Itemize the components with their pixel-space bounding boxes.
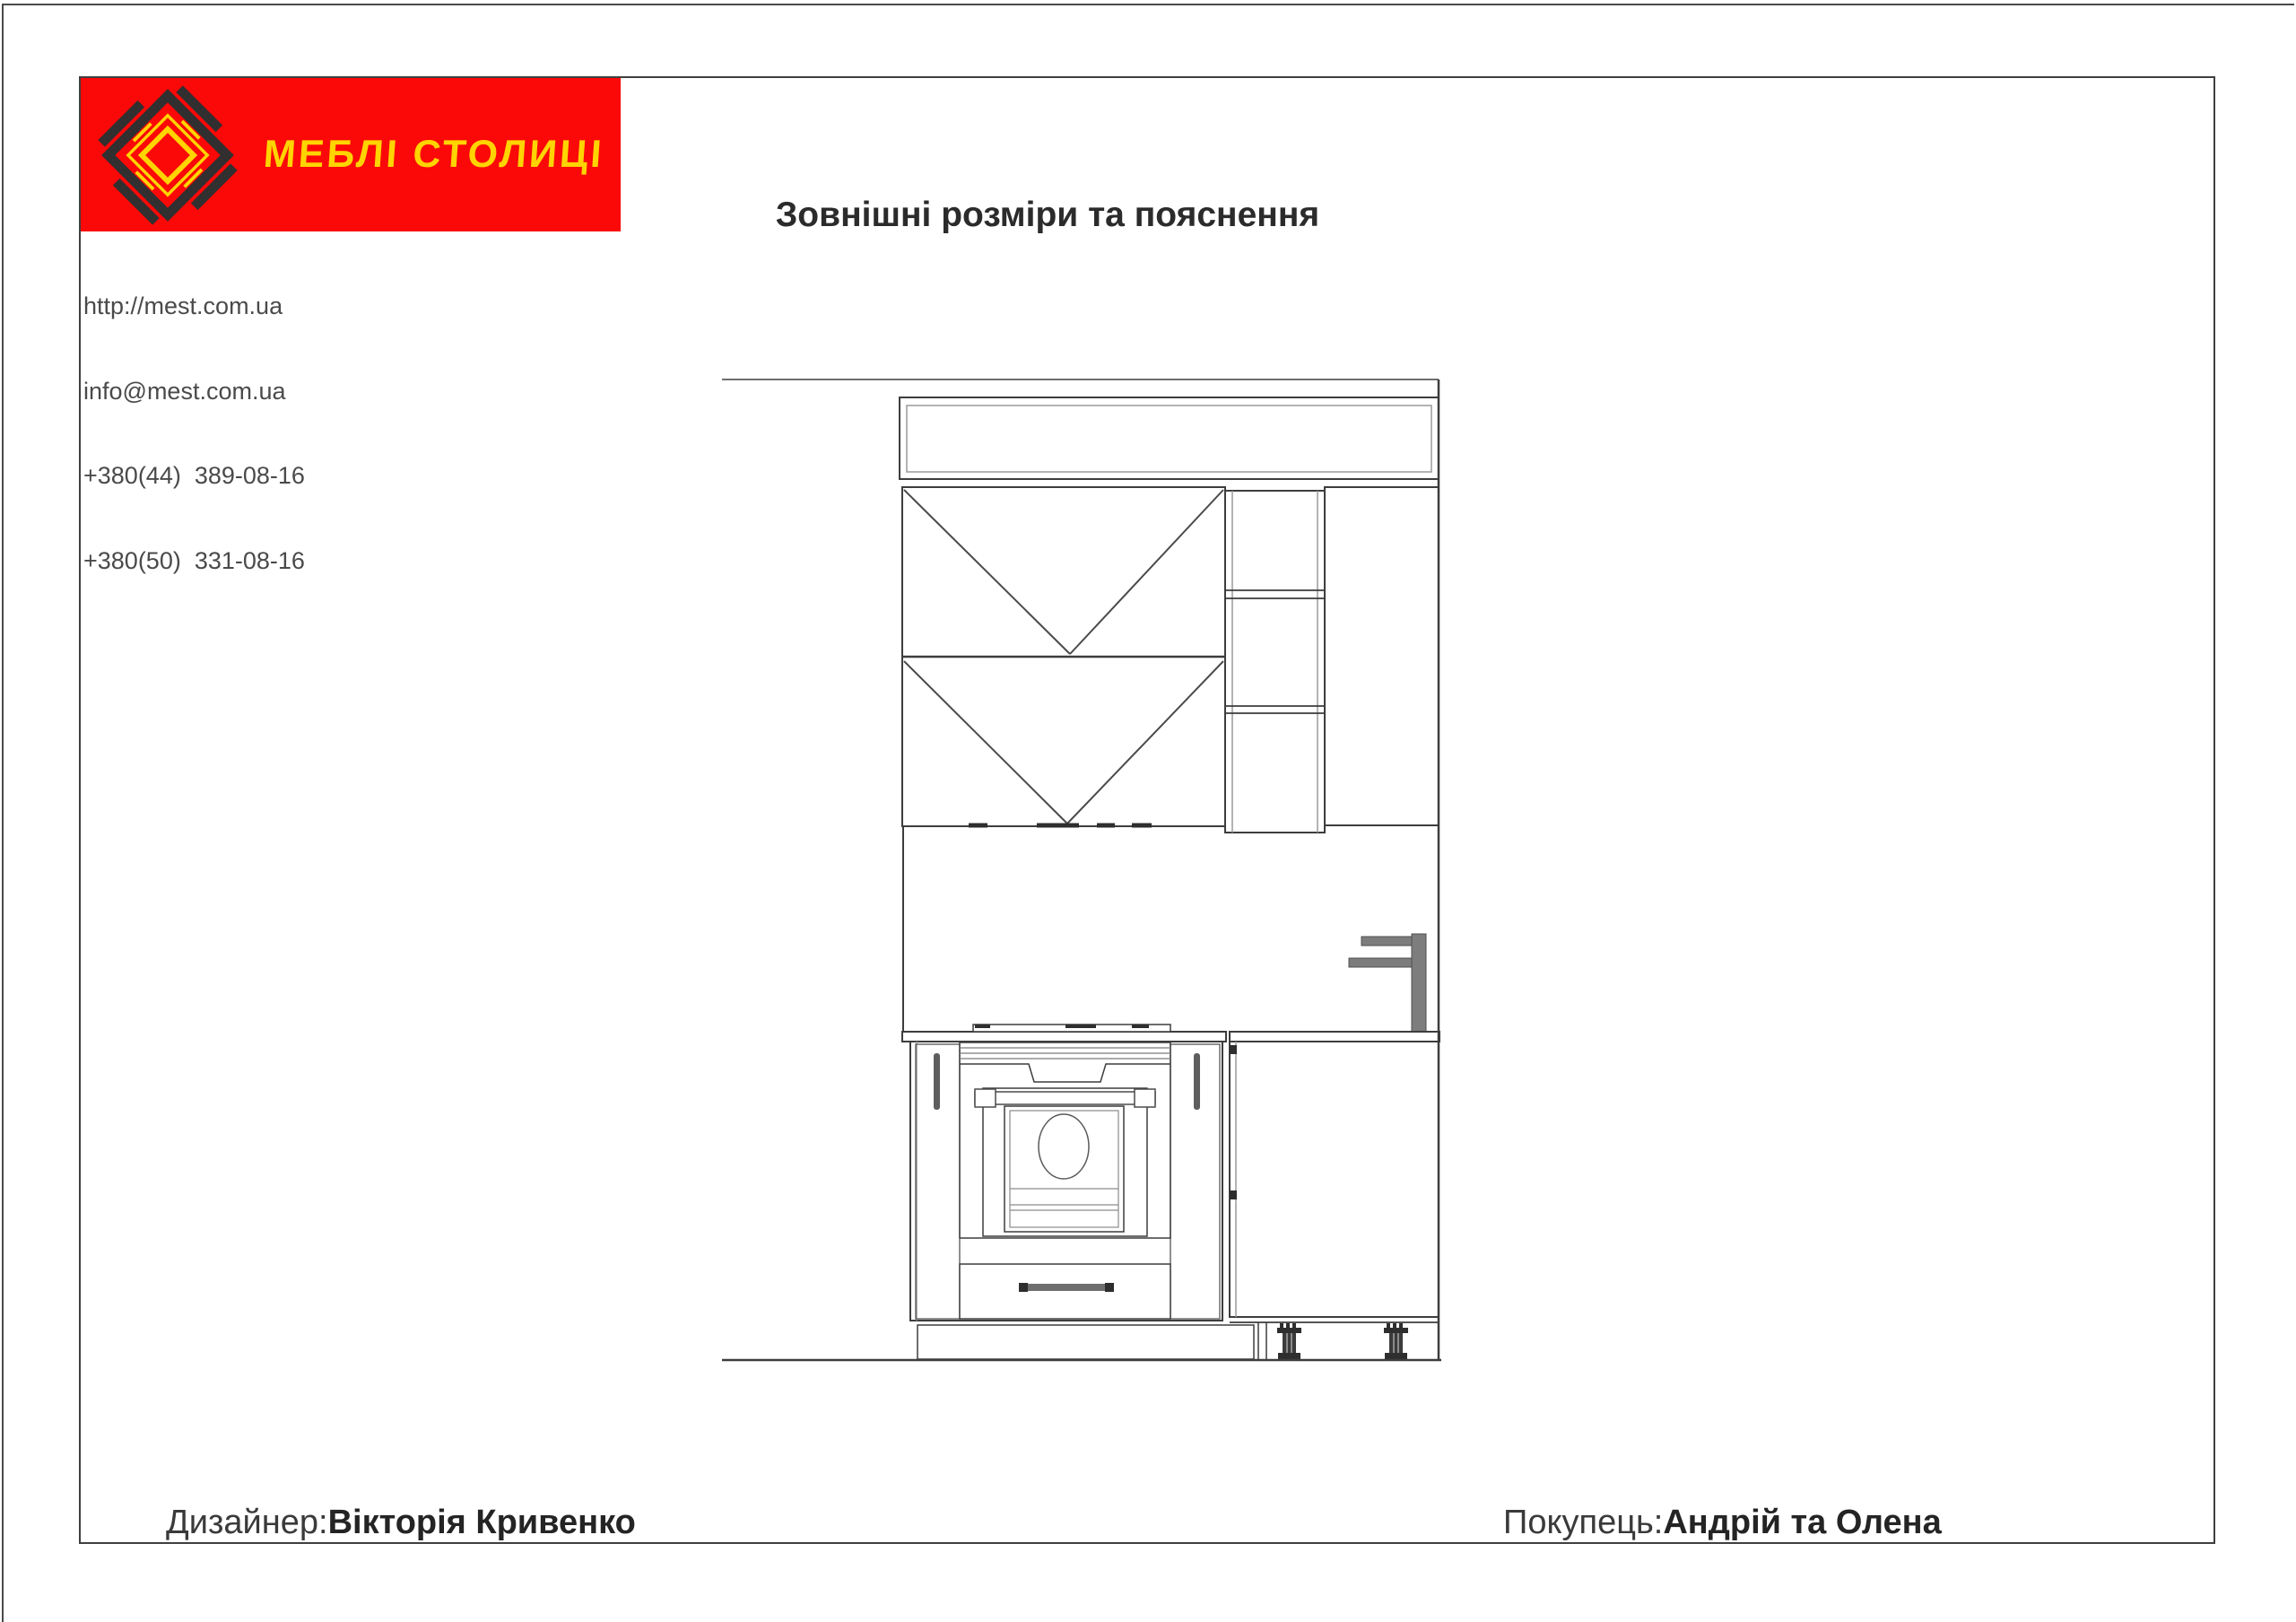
page-border-top (2, 4, 2294, 5)
cabinet-legs (1277, 1323, 1408, 1359)
diamond-logo-icon (93, 81, 242, 230)
brand-banner: МЕБЛІ СТОЛИЦІ (81, 78, 621, 231)
buyer-row: Покупець:Андрій та Олена (1503, 1504, 1942, 1542)
door-handle-right (1194, 1053, 1200, 1110)
design-sheet: МЕБЛІ СТОЛИЦІ http://mest.com.ua info@me… (0, 0, 2296, 1622)
kitchen-elevation-drawing (700, 359, 1471, 1382)
worktop (902, 1032, 1439, 1042)
page-border-left (2, 4, 4, 1622)
logo-outer-accents (93, 81, 242, 230)
email-link[interactable]: info@mest.com.ua (83, 378, 305, 406)
brand-name: МЕБЛІ СТОЛИЦІ (262, 133, 605, 177)
faucet (1349, 934, 1426, 1033)
designer-row: Дизайнер:Вікторія Кривенко (166, 1504, 636, 1542)
logo-center-diamond (142, 129, 194, 181)
side-panel-edge (1258, 1322, 1266, 1359)
door-handle-left (934, 1053, 940, 1110)
plinth (918, 1325, 1254, 1359)
designer-label: Дизайнер: (166, 1504, 328, 1541)
cooktop (973, 1025, 1170, 1032)
buyer-name: Андрій та Олена (1663, 1504, 1941, 1541)
side-panel (1325, 487, 1439, 825)
website-link[interactable]: http://mest.com.ua (83, 292, 305, 321)
oven-drawer (960, 1264, 1170, 1319)
contact-block: http://mest.com.ua info@mest.com.ua +380… (83, 236, 305, 632)
designer-name: Вікторія Кривенко (328, 1504, 636, 1541)
corner-base-cabinet (1230, 1042, 1439, 1359)
drawer-handle (1024, 1284, 1109, 1291)
oven-handle (975, 1092, 1155, 1104)
open-shelf-column (1225, 491, 1325, 833)
wall-cabinet-doors (902, 487, 1225, 826)
hinge-lower (1230, 1190, 1237, 1199)
phone-mobile: +380(50) 331-08-16 (83, 547, 305, 576)
hinge-upper (1230, 1045, 1237, 1054)
page-title: Зовнішні розміри та пояснення (776, 196, 1319, 235)
phone-kyiv: +380(44) 389-08-16 (83, 462, 305, 491)
leg-right (1384, 1323, 1408, 1359)
cornice (900, 397, 1439, 479)
leg-left (1277, 1323, 1301, 1359)
buyer-label: Покупець: (1503, 1504, 1663, 1541)
logo-yellow-dashes (119, 107, 216, 204)
